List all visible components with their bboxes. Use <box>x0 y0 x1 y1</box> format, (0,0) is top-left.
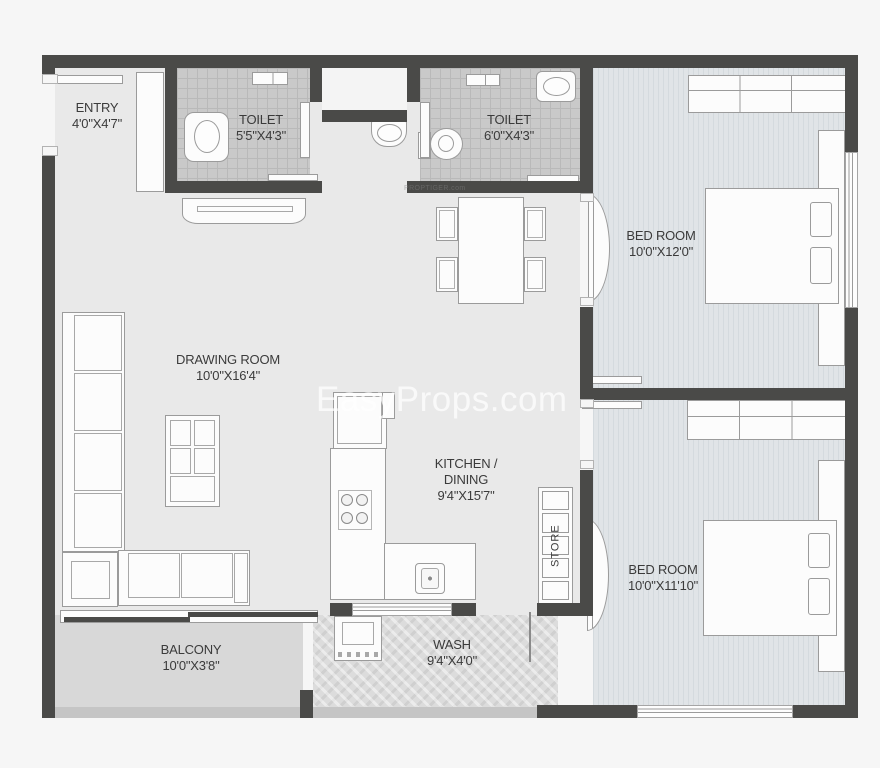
door-frame <box>42 74 58 84</box>
sofa-cushion <box>74 373 122 431</box>
wall-between-bedrooms <box>580 388 858 400</box>
sofa-cushion <box>74 493 122 548</box>
table-pane <box>194 420 215 446</box>
room-name: TOILET <box>196 112 326 128</box>
wall-top <box>42 55 858 68</box>
wall-toilet-1-left <box>165 68 177 193</box>
room-dims: 10'0"X16'4" <box>163 368 293 384</box>
shoe-cabinet <box>136 72 164 192</box>
center-table <box>165 415 220 507</box>
room-dims: 10'0"X3'8" <box>126 658 256 674</box>
washing-machine <box>334 616 382 661</box>
room-name: BED ROOM <box>596 228 726 244</box>
store-unit: STORE <box>538 487 573 604</box>
sofa-armrest <box>234 553 248 603</box>
wall-bottom <box>793 705 858 718</box>
balcony-parapet <box>55 707 303 718</box>
wall-toilet-2-bottom <box>407 181 593 193</box>
wall-right <box>845 308 858 718</box>
door-frame <box>42 146 58 156</box>
wall-right <box>845 55 858 152</box>
toilet-2-label: TOILET 6'0"X4'3" <box>444 112 574 144</box>
dining-chair <box>524 207 546 241</box>
table-pane <box>194 448 215 474</box>
wall-divider <box>580 307 593 400</box>
cistern-toilet-1 <box>252 72 288 85</box>
toilet-2-door-leaf <box>420 102 430 158</box>
room-name: DINING <box>401 472 531 488</box>
entry-label: ENTRY 4'0"X4'7" <box>42 100 152 132</box>
wardrobe-bedroom-2 <box>687 400 847 440</box>
dining-chair <box>436 207 458 241</box>
dining-chair <box>524 257 546 292</box>
drawing-room-label: DRAWING ROOM 10'0"X16'4" <box>163 352 293 384</box>
wall-left <box>42 151 55 718</box>
room-name: BED ROOM <box>598 562 728 578</box>
gas-stove <box>338 490 372 530</box>
kitchen-counter-box <box>333 392 387 449</box>
room-dims: 10'0"X12'0" <box>596 244 726 260</box>
room-dims: 10'0"X11'10" <box>598 578 728 594</box>
door-frame <box>580 297 594 306</box>
sofa-two-seater <box>118 550 250 606</box>
pillow <box>810 247 832 284</box>
wall-kitchen-bottom <box>537 603 593 616</box>
tv-console <box>182 198 306 224</box>
door-frame <box>580 399 594 408</box>
wall-kitchen-bottom <box>330 603 352 616</box>
duct-niche <box>322 68 407 110</box>
washing-machine-controls <box>338 652 378 657</box>
stove-burner <box>341 512 353 524</box>
room-dims: 5'5"X4'3" <box>196 128 326 144</box>
room-dims: 9'4"X4'0" <box>387 653 517 669</box>
sofa-cushion <box>74 433 122 491</box>
sofa-cushion <box>128 553 180 598</box>
stove-burner <box>356 512 368 524</box>
towel-rail-toilet-1 <box>268 174 318 181</box>
wall-divider <box>580 470 593 603</box>
kitchen-label: KITCHEN / DINING 9'4"X15'7" <box>401 456 531 504</box>
wash-label: WASH 9'4"X4'0" <box>387 637 517 669</box>
table-pane <box>170 420 191 446</box>
dining-table <box>458 197 524 304</box>
wall-toilet-2-left <box>407 68 420 102</box>
pillow <box>808 533 830 568</box>
main-door-leaf <box>57 75 123 84</box>
door-frame <box>580 193 594 202</box>
basin-bowl <box>543 77 570 96</box>
tv-console-shelf <box>197 206 293 212</box>
window-kitchen <box>352 603 452 616</box>
room-name: TOILET <box>444 112 574 128</box>
sink-basin <box>421 568 439 589</box>
balcony-slider-panel <box>188 612 318 617</box>
floor-plan: STORE <box>0 0 880 768</box>
window-bedroom-2 <box>637 705 793 718</box>
room-name: KITCHEN / <box>401 456 531 472</box>
room-name: WASH <box>387 637 517 653</box>
balcony-wash-post <box>300 690 313 718</box>
wall-toilet-1-bottom <box>165 181 322 193</box>
room-name: BALCONY <box>126 642 256 658</box>
table-pane <box>170 448 191 474</box>
balcony-label: BALCONY 10'0"X3'8" <box>126 642 256 674</box>
sofa-cushion <box>74 315 122 371</box>
wash-basin-passage <box>371 119 407 147</box>
sofa-long <box>62 312 125 552</box>
wall-kitchen-bottom <box>452 603 476 616</box>
balcony-slider-panel <box>64 617 190 622</box>
sofa-corner-seat <box>62 552 118 607</box>
stove-burner <box>341 494 353 506</box>
wardrobe-bedroom-1 <box>688 75 846 113</box>
room-dims: 6'0"X4'3" <box>444 128 574 144</box>
bedroom-2-label: BED ROOM 10'0"X11'10" <box>598 562 728 594</box>
wall-bottom <box>537 705 637 718</box>
wash-parapet <box>313 707 541 718</box>
kitchen-shelf-small <box>382 392 395 419</box>
kitchen-sink <box>415 563 445 594</box>
table-pane <box>170 476 215 502</box>
pillow <box>808 578 830 615</box>
store-label: STORE <box>539 488 572 603</box>
wash-basin-toilet-2 <box>536 71 576 102</box>
wall-duct-bottom <box>322 110 407 122</box>
toilet-1-label: TOILET 5'5"X4'3" <box>196 112 326 144</box>
window-bedroom-1 <box>845 152 858 308</box>
basin-bowl <box>377 124 402 142</box>
wall-divider <box>580 68 593 181</box>
sofa-cushion <box>71 561 110 599</box>
bedroom-1-label: BED ROOM 10'0"X12'0" <box>596 228 726 260</box>
wall-toilet-1-right <box>310 68 322 102</box>
door-frame <box>580 460 594 469</box>
room-dims: 4'0"X4'7" <box>42 116 152 132</box>
dining-chair <box>436 257 458 292</box>
room-name: ENTRY <box>42 100 152 116</box>
pillow <box>810 202 832 237</box>
washing-machine-door <box>342 622 374 645</box>
stove-burner <box>356 494 368 506</box>
cistern-toilet-2 <box>466 74 500 86</box>
sofa-cushion <box>181 553 233 598</box>
counter-inner <box>337 396 382 444</box>
room-name: DRAWING ROOM <box>163 352 293 368</box>
room-dims: 9'4"X15'7" <box>401 488 531 504</box>
wash-door-leaf <box>529 612 531 662</box>
